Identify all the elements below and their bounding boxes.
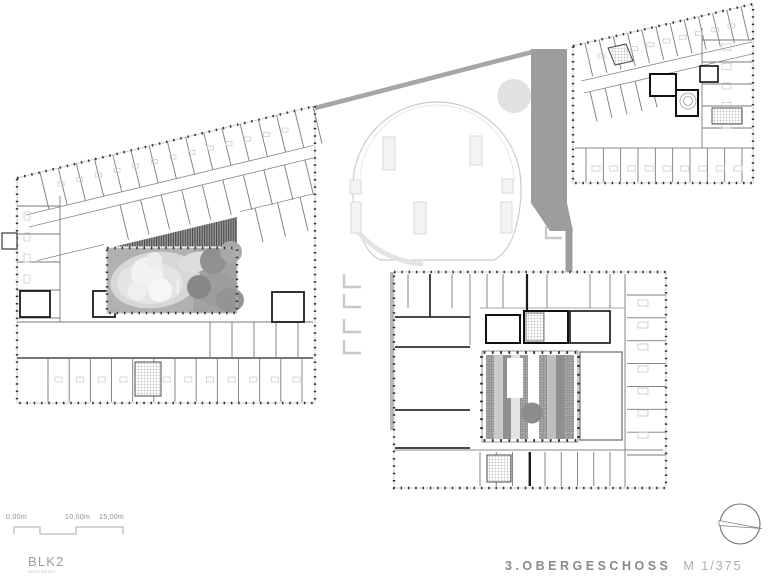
- north-east-wing: [573, 4, 753, 183]
- title-block: 3.OBERGESCHOSS M 1/375: [505, 559, 743, 573]
- small-roof-circle: [497, 79, 531, 113]
- north-arrow-icon: [719, 504, 762, 544]
- logo-subtitle: Architekten: [28, 569, 65, 574]
- floor-title: 3.OBERGESCHOSS: [505, 559, 671, 573]
- scale-label-15m: 15,00m: [99, 514, 124, 521]
- scale-bar-graphic: [14, 527, 123, 534]
- logo-name: BLK2: [28, 555, 65, 568]
- atrium-stripes: [486, 355, 574, 439]
- meeting-room: [580, 352, 622, 440]
- architect-logo: BLK2 Architekten: [28, 555, 65, 574]
- courtyard-label-tick: [177, 280, 178, 294]
- scale-title: M 1/375: [683, 559, 742, 573]
- facade-shadow-strip: [390, 272, 394, 430]
- south-east-atrium: [480, 351, 622, 442]
- floor-plan-sheet: 0,00m 10,00m 15,00m BLK2 Architekten 3.O…: [0, 0, 780, 581]
- scale-label-10m: 10,00m: [65, 514, 90, 521]
- circular-roof-terrace: [350, 79, 531, 264]
- floor-plan-drawing: [0, 0, 780, 581]
- scale-label-0m: 0,00m: [6, 514, 27, 521]
- atrium-circle: [522, 403, 543, 424]
